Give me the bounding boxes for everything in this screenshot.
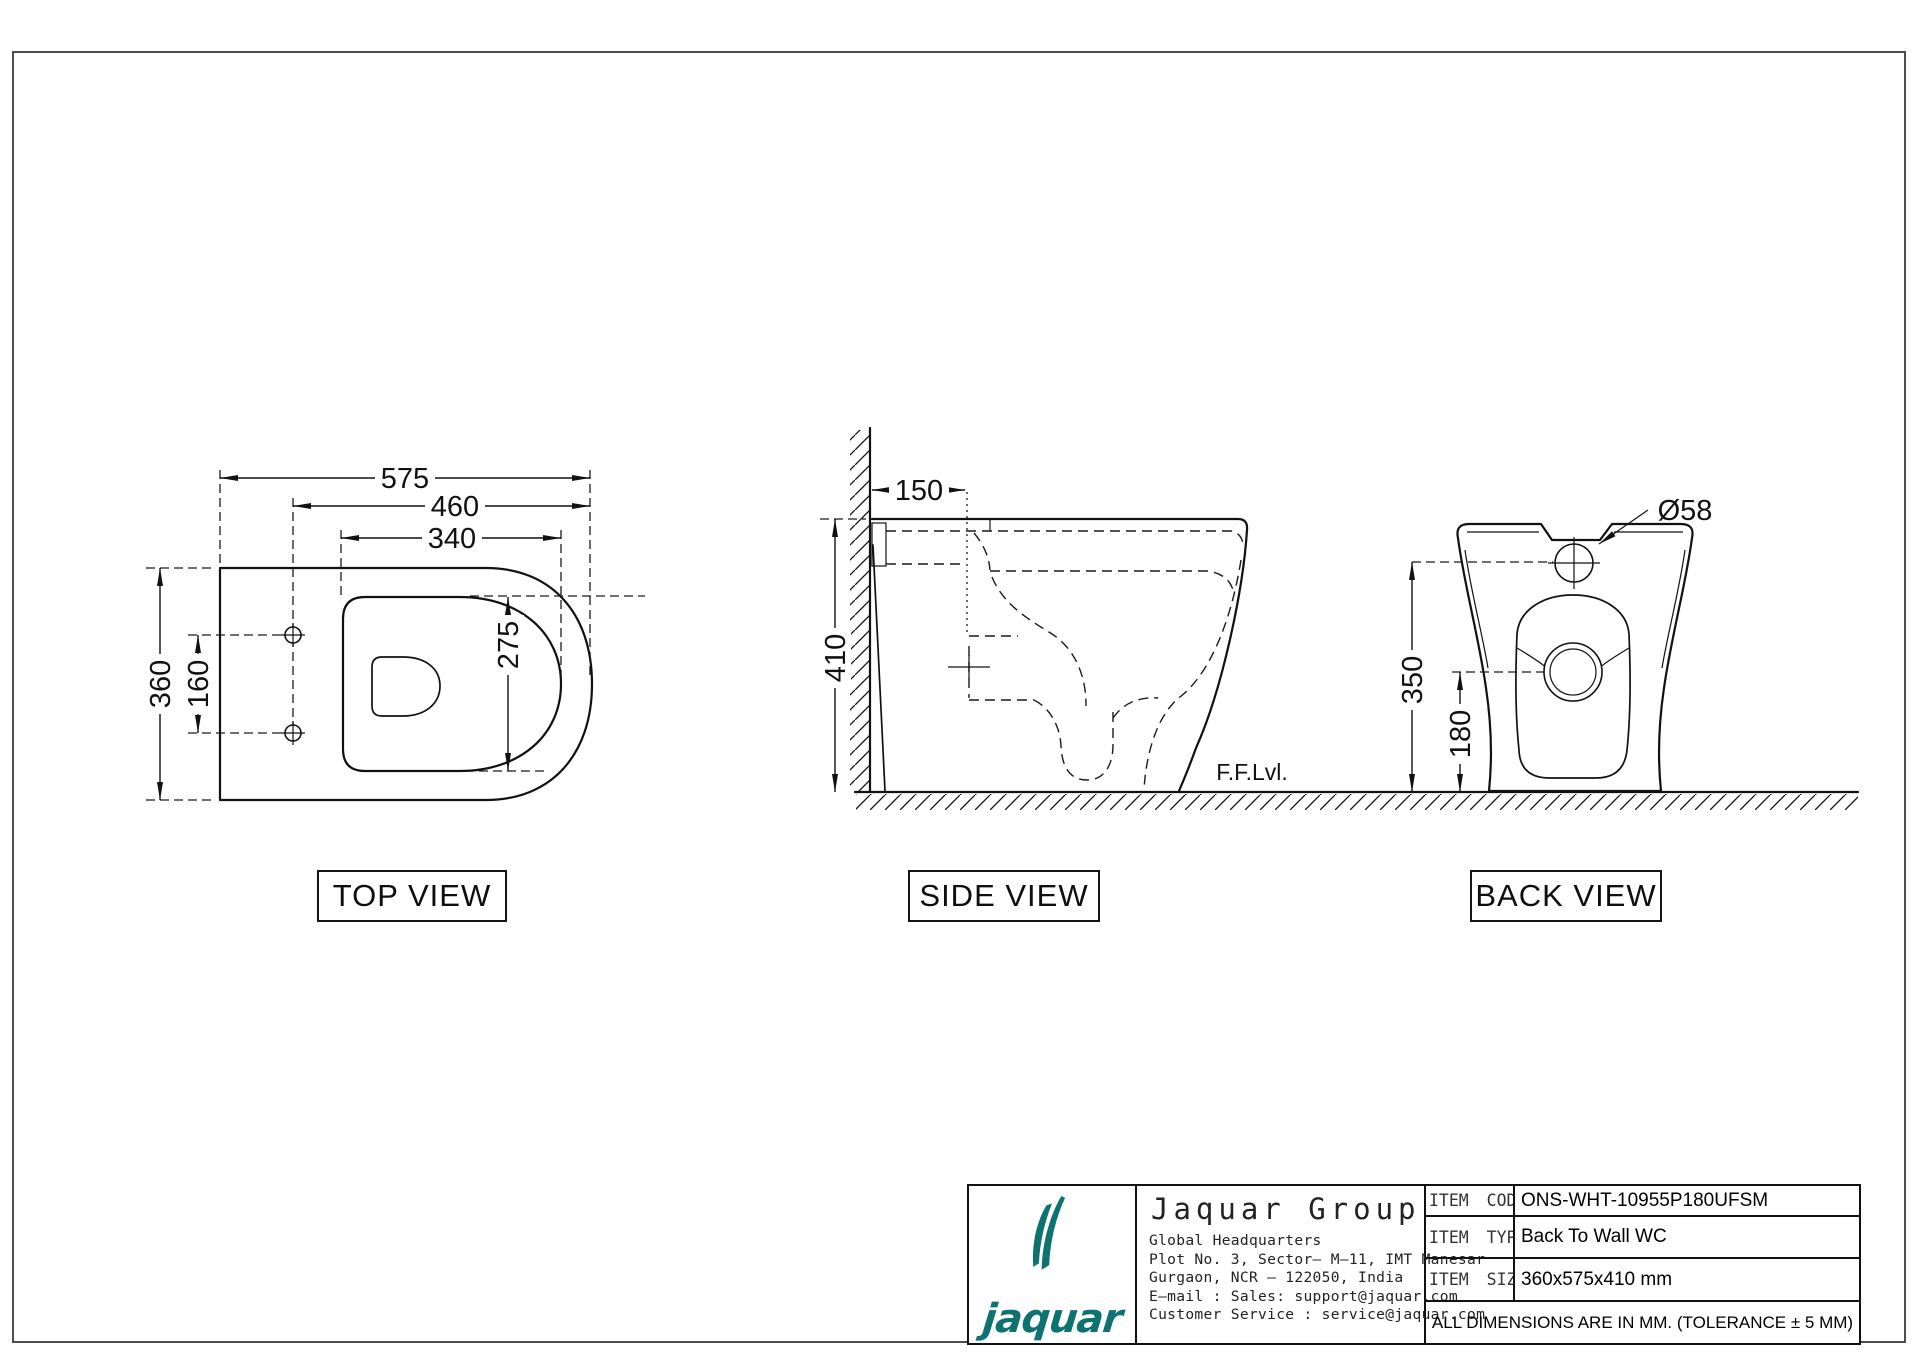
address-line: Plot No. 3, Sector– M–11, IMT Manesar [1149, 1251, 1424, 1270]
item-size-value: 360x575x410 mm [1515, 1259, 1859, 1302]
address-line: Gurgaon, NCR – 122050, India [1149, 1269, 1424, 1288]
dim-inlet-height: 350 [1397, 656, 1429, 704]
flush-outlet-outline [372, 657, 440, 716]
side-view-label: SIDE VIEW [908, 870, 1100, 922]
fixing-hole-marker [281, 623, 305, 647]
trap-outline [1034, 700, 1113, 780]
dim-seat-opening-width: 275 [493, 621, 525, 669]
dim-body-width: 360 [145, 660, 177, 708]
jaquar-logo-icon [1024, 1194, 1080, 1282]
back-view-drawing: Ø58 350 180 [1396, 495, 1712, 792]
tolerance-note: ALL DIMENSIONS ARE IN MM. (TOLERANCE ± 5… [1426, 1302, 1859, 1343]
brand-logo-cell: jaquar [969, 1186, 1137, 1343]
item-type-value: Back To Wall WC [1515, 1217, 1859, 1259]
item-size-label: ITEM SIZE [1426, 1259, 1515, 1302]
outlet-hole [1544, 643, 1602, 701]
dim-fixing-hole-spacing: 160 [183, 660, 215, 708]
side-view-drawing: 150 410 F.F.Lvl. [819, 428, 1858, 810]
drawing-sheet: { "views": { "top": { "label": "TOP VIEW… [0, 0, 1920, 1356]
dim-outlet-height: 180 [1445, 710, 1477, 758]
back-view-label: BACK VIEW [1470, 870, 1662, 922]
dim-total-depth: 575 [381, 463, 429, 495]
dim-seat-depth: 460 [431, 491, 479, 523]
dim-inlet-diameter: Ø58 [1658, 495, 1713, 527]
item-code-value: ONS-WHT-10955P180UFSM [1515, 1186, 1859, 1217]
floor-level-label: F.F.Lvl. [1216, 759, 1288, 785]
floor-hatching [856, 794, 1858, 810]
dim-outlet-from-wall: 150 [895, 475, 943, 507]
address-line: Global Headquarters [1149, 1232, 1424, 1251]
wc-body-outline-side [872, 519, 1247, 791]
address-line: E–mail : Sales: support@jaquar.com [1149, 1288, 1424, 1307]
brand-wordmark: jaquar [981, 1299, 1124, 1339]
inlet-hole [1548, 537, 1600, 589]
top-view-drawing: 575 460 340 360 160 275 [144, 462, 645, 800]
wc-body-outline-top [220, 568, 592, 800]
wall-hatching [850, 430, 869, 792]
item-code-label: ITEM CODE [1426, 1186, 1515, 1217]
item-type-label: ITEM TYPE [1426, 1217, 1515, 1259]
dim-body-height: 410 [820, 634, 852, 682]
item-info-table: ITEM CODE ONS-WHT-10955P180UFSM ITEM TYP… [1426, 1186, 1859, 1343]
company-address-cell: Jaquar Group Global Headquarters Plot No… [1137, 1186, 1426, 1343]
fixing-hole-marker [281, 721, 305, 745]
company-name: Jaquar Group [1151, 1192, 1424, 1226]
dim-seat-opening-length: 340 [428, 523, 476, 555]
top-view-label: TOP VIEW [317, 870, 507, 922]
drawing-canvas: 575 460 340 360 160 275 [0, 0, 1920, 1356]
title-block: jaquar Jaquar Group Global Headquarters … [967, 1184, 1861, 1345]
seat-opening-outline [343, 597, 561, 771]
pedestal-back-edge [873, 545, 885, 791]
address-line: Customer Service : service@jaquar.com [1149, 1306, 1424, 1325]
